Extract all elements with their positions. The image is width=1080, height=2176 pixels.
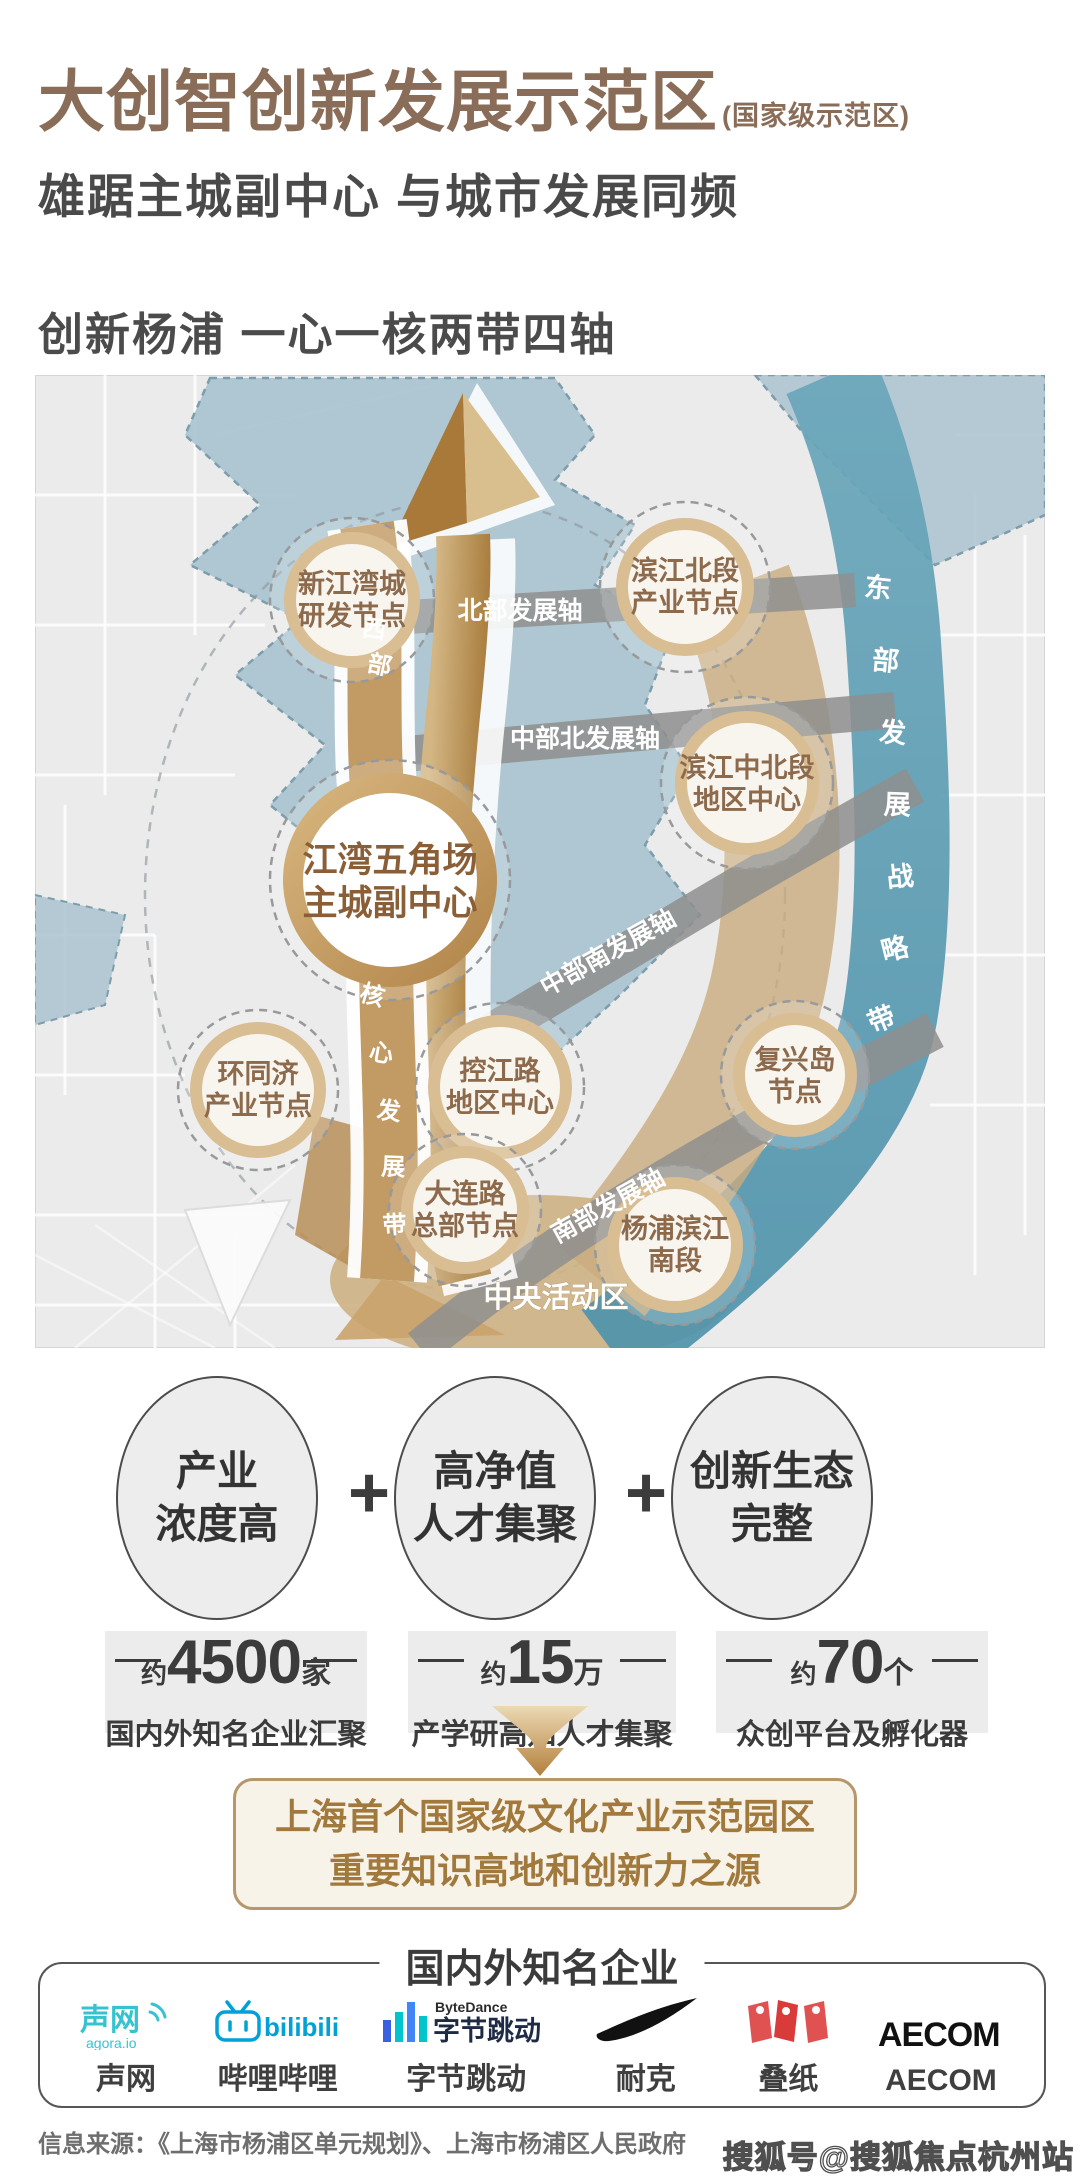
stat-box-enterprises: 约4500家 国内外知名企业汇聚 [105,1631,367,1733]
central-activity-label: 中央活动区 [483,1281,628,1314]
agora-logo-icon: 声网 agora.io [78,1994,174,2050]
node-label: 地区中心 [693,785,801,815]
section-title: 创新杨浦 一心一核两带四轴 [38,298,617,363]
svg-text:ByteDance: ByteDance [435,1999,508,2015]
page-title: 大创智创新发展示范区(国家级示范区) [38,68,910,138]
node-label: 南段 [648,1246,702,1276]
svg-text:东: 东 [863,571,893,605]
node-label: 产业节点 [631,588,739,618]
node-label: 滨江中北段 [680,752,815,783]
plus-sign: + [348,1452,390,1534]
node-label: 总部节点 [411,1210,519,1241]
node-label: 地区中心 [446,1088,554,1118]
watermark: 搜狐号@搜狐焦点杭州站 [723,2132,1074,2176]
page-title-tag: (国家级示范区) [722,101,910,131]
highlight-line2: 重要知识高地和创新力之源 [329,1844,761,1898]
highlight-box: 上海首个国家级文化产业示范园区 重要知识高地和创新力之源 [233,1778,857,1910]
companies-panel: 国内外知名企业 声网 agora.io 声网 bilibil [38,1962,1046,2108]
company-aecom: AECOM AECOM [876,2004,1006,2098]
west-blue-zone [35,895,125,1025]
bilibili-logo-icon: bilibili [214,1994,342,2050]
infographic-page: 大创智创新发展示范区(国家级示范区) 雄踞主城副中心 与城市发展同频 创新杨浦 … [0,0,1080,2176]
svg-text:心: 心 [367,1038,395,1069]
feature-circle-ecosystem: 创新生态完整 [671,1376,873,1620]
node-label: 控江路 [460,1055,542,1086]
company-nike: 耐克 [591,1994,701,2098]
page-title-text: 大创智创新发展示范区 [38,65,718,140]
svg-text:发: 发 [877,716,907,749]
node-label: 复兴岛 [755,1044,836,1075]
planning-map: 新江湾城 研发节点 滨江北段 产业节点 滨江中北段 地区中心 环同济 产业节点 … [35,375,1045,1348]
map-node-xinjiangwan: 新江湾城 研发节点 [270,518,434,682]
svg-text:bilibili: bilibili [264,2012,339,2042]
node-label: 研发节点 [298,600,406,631]
map-node-binjiang-mid-north: 滨江中北段 地区中心 [661,697,833,869]
node-label: 环同济 [218,1059,300,1089]
map-node-fuxing-island: 复兴岛 节点 [721,1001,869,1149]
svg-text:发: 发 [374,1096,402,1126]
node-label: 主城副中心 [302,884,477,923]
axis-label-mid-north: 中部北发展轴 [510,724,660,753]
map-node-binjiang-north: 滨江北段 产业节点 [600,502,770,672]
node-label: 新江湾城 [298,568,406,599]
node-label: 江湾五角场 [302,840,477,880]
map-node-huantongji: 环同济 产业节点 [178,1010,338,1170]
company-agora: 声网 agora.io 声网 [78,1994,174,2098]
svg-text:agora.io: agora.io [86,2035,137,2050]
svg-text:带: 带 [382,1211,407,1239]
stat-box-incubators: 约70个 众创平台及孵化器 [716,1631,988,1733]
svg-text:展: 展 [381,1154,406,1182]
node-label: 产业节点 [204,1091,312,1121]
svg-text:AECOM: AECOM [878,2016,1000,2054]
down-arrow-funnel [478,1706,602,1776]
papergames-logo-icon [740,1994,836,2050]
source-note: 信息来源：《上海市杨浦区单元规划》、上海市杨浦区人民政府 [38,2124,686,2159]
svg-text:字节跳动: 字节跳动 [433,2015,541,2046]
map-node-wujiaochang-center: 江湾五角场 主城副中心 [270,760,510,1000]
company-papergames: 叠纸 [740,1994,836,2098]
company-bytedance: ByteDance 字节跳动 字节跳动 [381,1994,551,2098]
node-label: 滨江北段 [631,555,739,586]
axis-label-north: 北部发展轴 [457,596,582,625]
svg-text:部: 部 [871,644,901,677]
node-label: 节点 [768,1077,822,1107]
companies-title: 国内外知名企业 [379,1938,704,1994]
svg-text:西: 西 [360,615,388,645]
company-bilibili: bilibili 哔哩哔哩 [214,1994,342,2098]
aecom-logo-icon: AECOM [876,2004,1006,2060]
svg-text:战: 战 [885,861,915,894]
feature-circle-industry: 产业浓度高 [116,1376,318,1620]
bytedance-logo-icon: ByteDance 字节跳动 [381,1994,551,2050]
svg-text:展: 展 [883,790,911,821]
header: 大创智创新发展示范区(国家级示范区) 雄踞主城副中心 与城市发展同频 [38,68,910,227]
page-subtitle: 雄踞主城副中心 与城市发展同频 [38,158,910,227]
planning-map-svg: 新江湾城 研发节点 滨江北段 产业节点 滨江中北段 地区中心 环同济 产业节点 … [35,375,1045,1348]
svg-text:声网: 声网 [80,2004,140,2037]
node-label: 大连路 [425,1178,507,1209]
nike-swoosh-icon [591,1994,701,2050]
map-node-dalian-road: 大连路 总部节点 [389,1134,541,1286]
plus-sign: + [625,1452,667,1534]
highlight-line1: 上海首个国家级文化产业示范园区 [275,1790,815,1844]
feature-circle-talent: 高净值人才集聚 [394,1376,596,1620]
node-label: 杨浦滨江 [621,1213,729,1244]
